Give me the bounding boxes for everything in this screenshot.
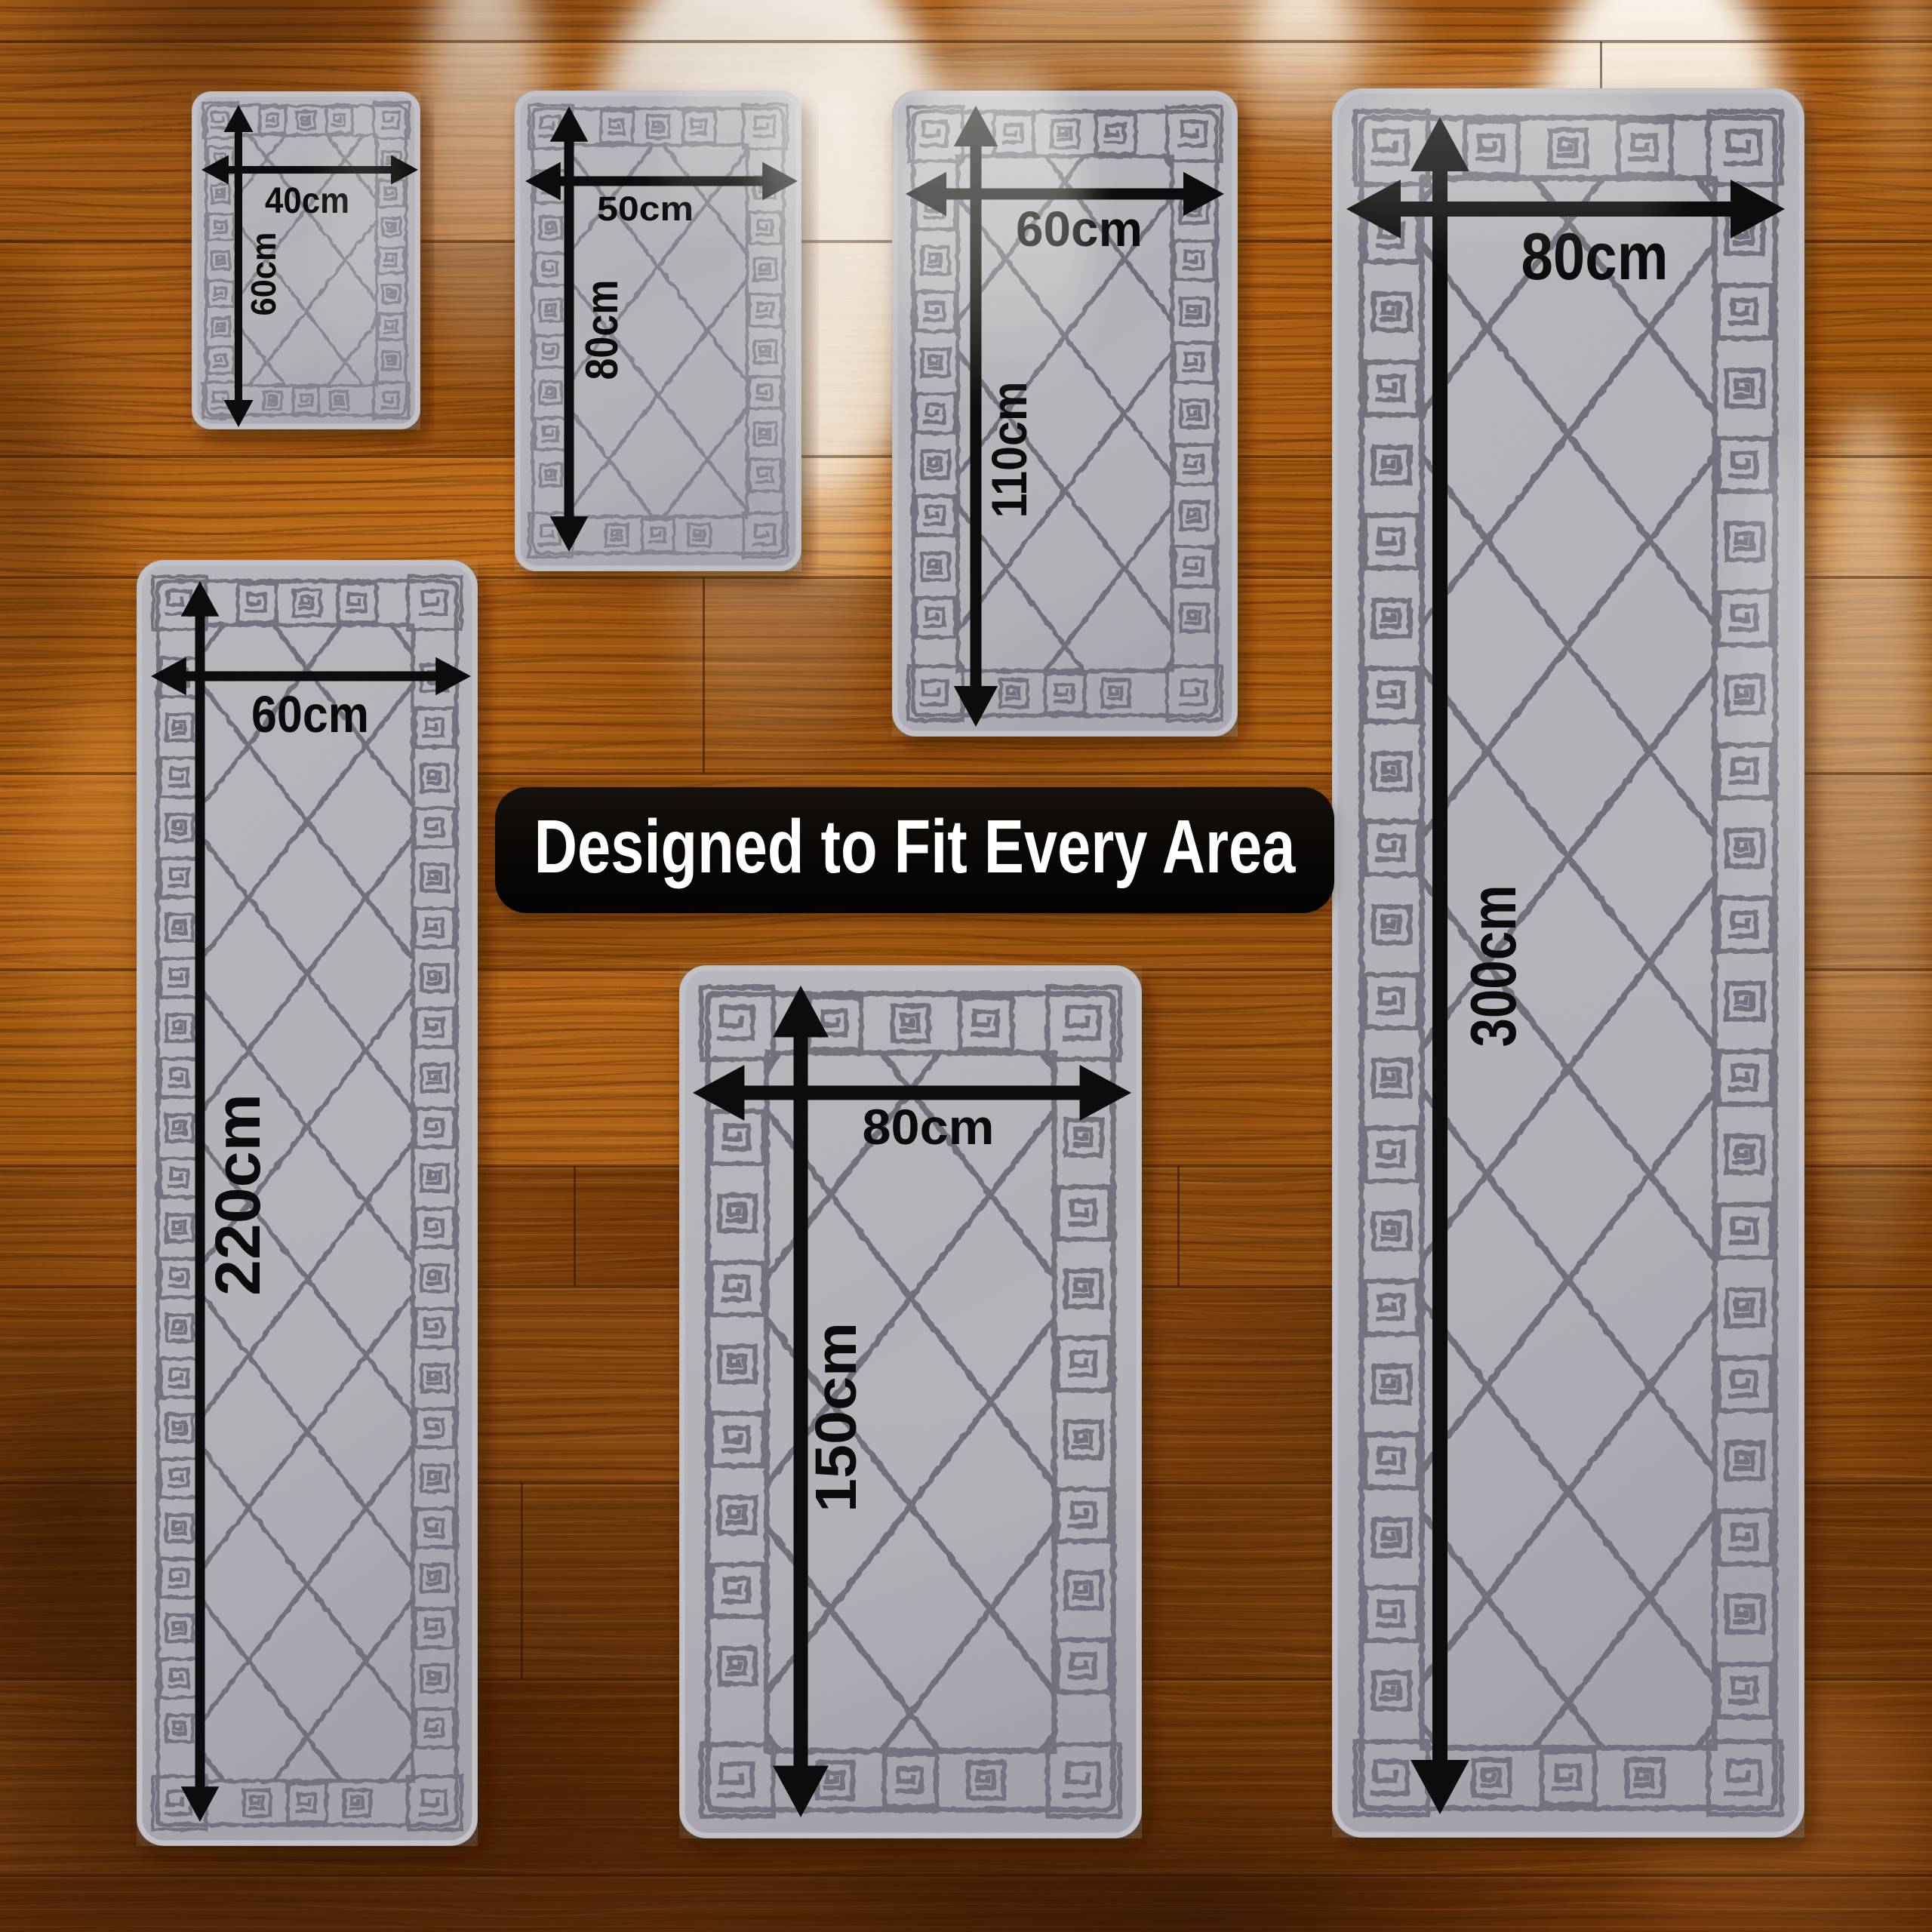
svg-text:60cm: 60cm bbox=[251, 685, 369, 743]
svg-text:300cm: 300cm bbox=[1458, 885, 1530, 1048]
svg-text:80cm: 80cm bbox=[863, 1099, 995, 1155]
svg-text:80cm: 80cm bbox=[577, 280, 627, 380]
svg-text:60cm: 60cm bbox=[244, 232, 283, 316]
svg-text:150cm: 150cm bbox=[804, 1322, 869, 1512]
svg-text:220cm: 220cm bbox=[202, 1094, 273, 1296]
